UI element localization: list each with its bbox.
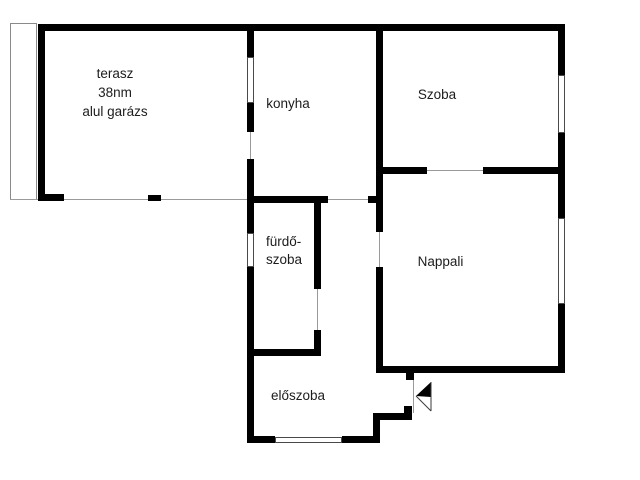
furdo-door-line xyxy=(317,289,318,330)
terasz-left-wall xyxy=(38,24,45,200)
room-label-terasz: terasz 38nm alul garázs xyxy=(50,64,180,121)
room-label-eloszoba: előszoba xyxy=(250,386,346,405)
furdoszoba-name-line1: fürdő- xyxy=(266,233,302,251)
konyha-szoba-divider-wall xyxy=(376,24,383,232)
konyha-bottom-wall-right xyxy=(368,196,376,203)
room-label-furdoszoba: fürdő- szoba xyxy=(266,233,302,269)
furdoszoba-name-line2: szoba xyxy=(266,251,302,269)
furdo-bottom-wall xyxy=(247,349,321,356)
konyha-door-line xyxy=(328,199,368,200)
szoba-bottom-wall-left xyxy=(376,167,427,174)
nappali-bottom-wall xyxy=(376,366,565,373)
outer-top-wall xyxy=(38,24,565,31)
furdo-right-wall-upper xyxy=(314,196,321,289)
outer-right-wall-lower xyxy=(558,304,565,373)
entry-door-jamb-top xyxy=(406,373,414,380)
nappali-window xyxy=(558,218,565,304)
outer-right-wall-upper xyxy=(558,24,565,75)
entry-door-jamb-bottom xyxy=(404,406,412,420)
room-label-konyha: konyha xyxy=(247,94,329,113)
szoba-name: Szoba xyxy=(383,85,491,104)
furdo-window xyxy=(247,233,254,267)
room-label-szoba: Szoba xyxy=(383,85,491,104)
terasz-area: 38nm xyxy=(50,83,180,102)
terasz-note: alul garázs xyxy=(50,102,180,121)
terasz-konyha-wall-upper xyxy=(247,24,254,57)
entry-door-line xyxy=(413,379,414,413)
entry-left-wall xyxy=(373,413,380,443)
terasz-bottom-stub-left xyxy=(38,194,64,201)
terasz-name: terasz xyxy=(50,64,180,83)
nappali-left-wall-lower xyxy=(376,267,383,373)
room-label-nappali: Nappali xyxy=(383,252,498,271)
szoba-window xyxy=(558,75,565,133)
nappali-door-line xyxy=(379,232,380,267)
terasz-bottom-stub-mid xyxy=(148,195,161,201)
terasz-konyha-door-line xyxy=(250,132,251,159)
eloszoba-name: előszoba xyxy=(250,386,346,405)
entry-door-swing-icon xyxy=(415,381,435,413)
szoba-door-line xyxy=(427,170,483,171)
nappali-name: Nappali xyxy=(383,252,498,271)
szoba-bottom-wall-right xyxy=(483,167,565,174)
konyha-name: konyha xyxy=(247,94,329,113)
eloszoba-window xyxy=(275,437,342,443)
floor-plan: terasz 38nm alul garázs konyha Szoba für… xyxy=(0,0,640,480)
outer-right-wall-mid xyxy=(558,133,565,218)
eloszoba-bottom-wall-left xyxy=(247,436,275,443)
terasz-side-strip xyxy=(10,23,37,200)
